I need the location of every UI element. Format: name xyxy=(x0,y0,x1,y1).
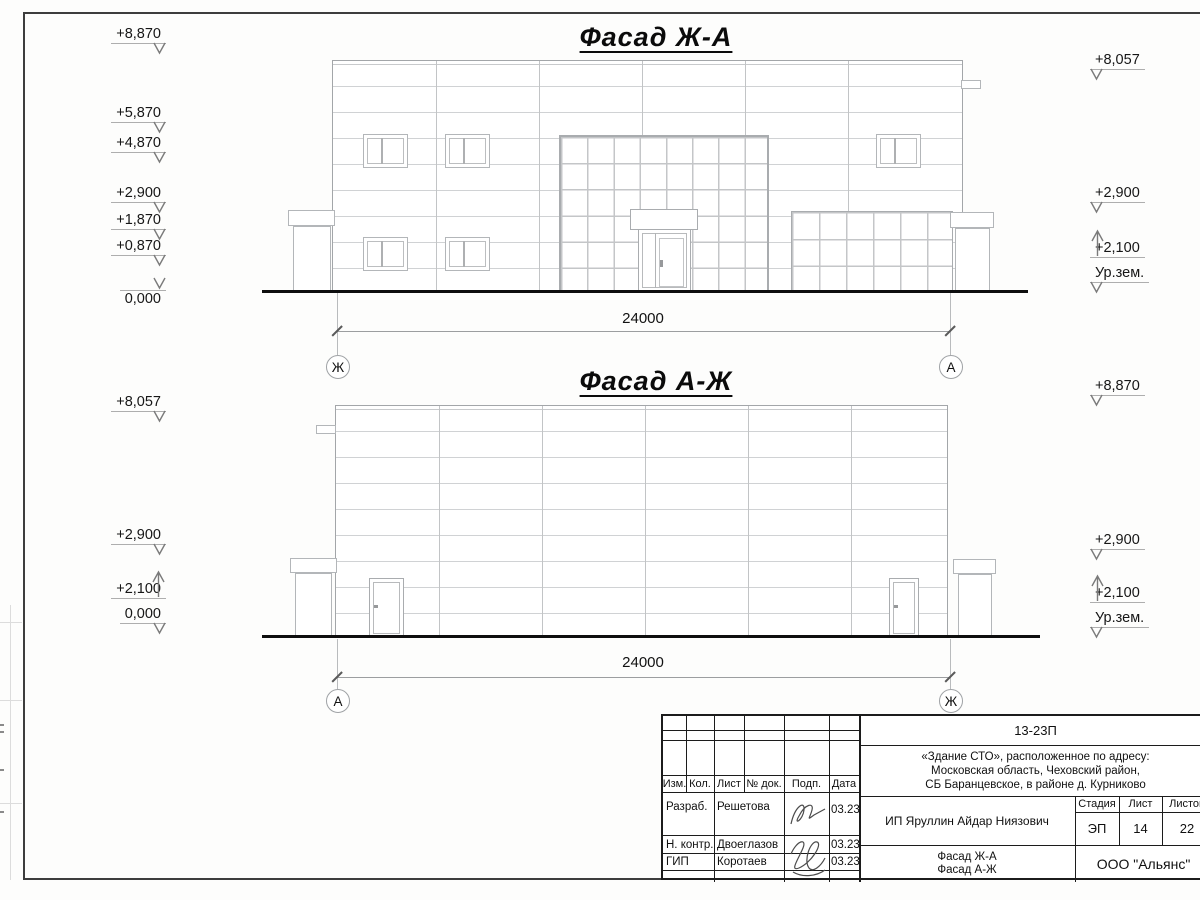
tb-name: Решетова xyxy=(717,798,783,816)
tb-name: Коротаев xyxy=(717,854,783,870)
tb-client: ИП Яруллин Айдар Ниязович xyxy=(859,796,1075,845)
tb-col-data: Дата xyxy=(829,775,859,792)
window-frame xyxy=(880,138,917,164)
level-mark: +0,870 xyxy=(98,238,166,256)
window xyxy=(363,237,408,271)
sheet-edge-artifact xyxy=(0,803,22,804)
panel-joint xyxy=(439,406,440,636)
window-frame xyxy=(449,138,486,164)
window-frame xyxy=(367,241,404,267)
annex xyxy=(955,228,990,291)
door-leaf xyxy=(893,582,915,634)
sheet-edge-artifact xyxy=(0,700,22,701)
door-handle xyxy=(894,605,898,608)
content-line: Фасад А-Ж xyxy=(937,864,996,877)
axis-bubble: А xyxy=(939,355,963,379)
tb-date: 03.23 xyxy=(831,802,859,818)
axis-letter: Ж xyxy=(332,360,344,375)
facade-title: Фасад А-Ж xyxy=(496,366,816,397)
tb-doc-number: 13-23П xyxy=(859,716,1200,745)
sheet-edge-artifact xyxy=(0,769,4,771)
level-mark: +2,100 xyxy=(1090,240,1162,258)
door-handle xyxy=(660,260,663,267)
ground-line xyxy=(262,635,1040,638)
window xyxy=(363,134,408,168)
title-block-line xyxy=(663,792,859,793)
roof-outlet xyxy=(316,425,336,434)
sheet-edge-artifact xyxy=(0,622,22,623)
dimension-label: 24000 xyxy=(558,654,728,671)
window-mullion xyxy=(381,241,383,267)
address-line: СБ Баранцевское, в районе д. Курниково xyxy=(925,778,1145,792)
tb-col-izm: Изм. xyxy=(663,775,686,792)
level-mark: +8,870 xyxy=(98,26,166,44)
axis-bubble: Ж xyxy=(939,689,963,713)
annex xyxy=(295,573,332,637)
dimension-line xyxy=(337,677,950,678)
panel-joint xyxy=(851,406,852,636)
window-mullion xyxy=(463,241,465,267)
window-mullion xyxy=(463,138,465,164)
axis-bubble: А xyxy=(326,689,350,713)
tb-col-podp: Подп. xyxy=(784,775,829,792)
window-frame xyxy=(367,138,404,164)
tb-col-list: Лист xyxy=(714,775,744,792)
level-mark: +4,870 xyxy=(98,135,166,153)
tb-col-ndok: № док. xyxy=(744,775,784,792)
door xyxy=(369,578,404,638)
window-mullion xyxy=(894,138,896,164)
tb-sheets-value: 22 xyxy=(1162,812,1200,845)
annex xyxy=(293,226,331,291)
panel-joint xyxy=(748,406,749,636)
level-mark: +2,100 xyxy=(1090,585,1162,603)
level-mark: +8,057 xyxy=(98,394,166,412)
tb-stage-label: Стадия xyxy=(1075,796,1119,812)
level-mark: +8,870 xyxy=(1090,378,1162,396)
panel-joint xyxy=(645,406,646,636)
window-mullion xyxy=(381,138,383,164)
axis-bubble: Ж xyxy=(326,355,350,379)
level-mark: +2,900 xyxy=(1090,532,1162,550)
tb-role: ГИП xyxy=(666,854,714,870)
extension-line xyxy=(950,639,951,689)
annex-cap xyxy=(290,558,337,573)
level-mark: +8,057 xyxy=(1090,52,1162,70)
level-mark: +2,900 xyxy=(98,185,166,203)
annex-cap xyxy=(950,212,994,228)
tb-company: ООО "Альянс" xyxy=(1075,845,1200,882)
level-mark: +5,870 xyxy=(98,105,166,123)
tb-stage-value: ЭП xyxy=(1075,812,1119,845)
sheet-edge-artifact xyxy=(10,605,11,880)
parapet-line xyxy=(333,64,962,65)
title-block-line xyxy=(663,740,859,741)
door xyxy=(889,578,919,638)
window-frame xyxy=(449,241,486,267)
panel-joint xyxy=(542,406,543,636)
tb-date: 03.23 xyxy=(831,836,859,853)
sheet-edge-artifact xyxy=(0,724,4,726)
axis-letter: Ж xyxy=(945,694,957,709)
title-block-line xyxy=(859,745,1200,746)
address-line: «Здание СТО», расположенное по адресу: xyxy=(921,750,1149,764)
tb-drawing-content: Фасад Ж-А Фасад А-Ж xyxy=(859,845,1075,882)
level-mark: Ур.зем. xyxy=(1090,265,1162,283)
extension-line xyxy=(337,293,338,355)
level-mark: +2,100 xyxy=(98,581,166,599)
facade-title: Фасад Ж-А xyxy=(496,22,816,53)
storefront-glazing xyxy=(791,211,953,292)
dimension-line xyxy=(337,331,950,332)
title-block: Изм. Кол. Лист № док. Подп. Дата Разраб.… xyxy=(661,714,1200,880)
dimension-label: 24000 xyxy=(558,310,728,327)
level-mark: Ур.зем. xyxy=(1090,610,1162,628)
door-leaf xyxy=(373,582,400,634)
door-handle xyxy=(374,605,378,608)
window xyxy=(445,134,490,168)
title-block-line xyxy=(663,730,859,731)
ground-line xyxy=(262,290,1028,293)
window xyxy=(445,237,490,271)
level-mark: +2,900 xyxy=(98,527,166,545)
annex xyxy=(958,574,992,637)
tb-project-address: «Здание СТО», расположенное по адресу: М… xyxy=(859,747,1200,794)
tb-col-kol: Кол. xyxy=(686,775,714,792)
annex-cap xyxy=(953,559,996,574)
panel-joint xyxy=(539,61,540,290)
sign-board xyxy=(630,209,698,230)
level-mark: +2,900 xyxy=(1090,185,1162,203)
tb-role: Разраб. xyxy=(666,798,714,816)
level-mark: 0,000 xyxy=(98,606,166,624)
address-line: Московская область, Чеховский район, xyxy=(931,764,1140,778)
tb-name: Двоеглазов xyxy=(717,836,783,853)
tb-date: 03.23 xyxy=(831,854,859,870)
signature-icon xyxy=(783,834,831,878)
tb-sheet-value: 14 xyxy=(1119,812,1162,845)
level-mark: 0,000 xyxy=(98,290,166,307)
tb-sheets-label: Листов xyxy=(1162,796,1200,812)
level-mark: +1,870 xyxy=(98,212,166,230)
tb-role: Н. контр. xyxy=(666,836,714,853)
panel-joint xyxy=(436,61,437,290)
extension-line xyxy=(337,639,338,689)
drawing-sheet: { "facade1": { "title": "Фасад Ж-А", "di… xyxy=(0,0,1200,900)
facade-aj-building xyxy=(335,405,948,637)
entrance-door xyxy=(638,229,691,292)
axis-letter: А xyxy=(946,360,955,375)
roof-outlet xyxy=(961,80,981,89)
window xyxy=(876,134,921,168)
extension-line xyxy=(950,293,951,355)
sheet-edge-artifact xyxy=(0,811,4,813)
sheet-edge-artifact xyxy=(0,731,4,733)
signature-icon xyxy=(785,794,829,834)
tb-sheet-label: Лист xyxy=(1119,796,1162,812)
axis-letter: А xyxy=(333,694,342,709)
facade-ja-building xyxy=(332,60,963,291)
content-line: Фасад Ж-А xyxy=(937,851,996,864)
door-sidelight-divider xyxy=(655,233,656,288)
annex-cap xyxy=(288,210,335,226)
parapet-line xyxy=(336,409,947,410)
